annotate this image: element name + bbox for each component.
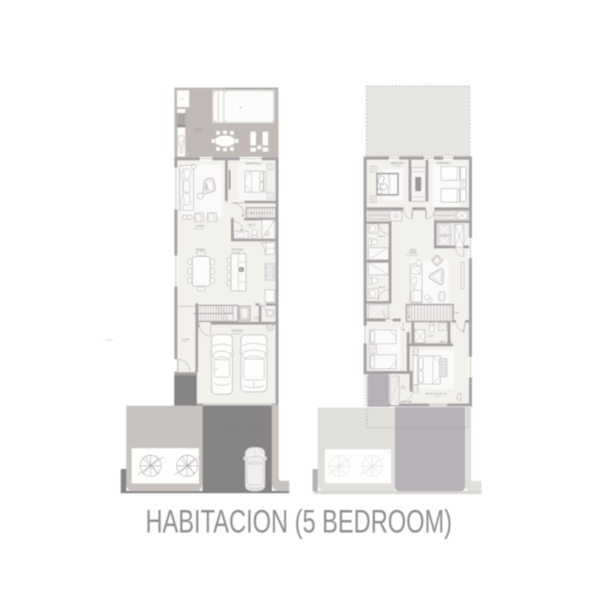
svg-text:WC 1: WC 1 xyxy=(429,336,435,338)
svg-text:KITCHEN: KITCHEN xyxy=(232,247,244,251)
svg-text:DINING: DINING xyxy=(196,247,205,251)
svg-text:P.E.: P.E. xyxy=(180,99,184,101)
svg-text:9' x 5': 9' x 5' xyxy=(249,227,254,229)
svg-text:16'4 x 13'1: 16'4 x 13'1 xyxy=(194,229,203,231)
svg-text:GARAGE: GARAGE xyxy=(231,329,243,333)
svg-text:LANAI: LANAI xyxy=(195,127,203,131)
svg-text:BATH 3: BATH 3 xyxy=(379,286,387,289)
svg-text:11'2 x 12': 11'2 x 12' xyxy=(394,166,402,168)
svg-text:FOYER: FOYER xyxy=(182,339,190,341)
svg-text:HABITACION (5 BEDROOM): HABITACION (5 BEDROOM) xyxy=(146,504,453,540)
svg-text:BATH 4: BATH 4 xyxy=(379,235,387,238)
svg-text:5'3 x 5'9: 5'3 x 5'9 xyxy=(254,319,260,321)
svg-text:21'10 x 21'9: 21'10 x 21'9 xyxy=(231,333,241,335)
svg-text:WIC: WIC xyxy=(401,386,405,388)
svg-text:— 1.05 —: — 1.05 — xyxy=(104,339,115,342)
svg-text:29' x 13': 29' x 13' xyxy=(195,132,203,134)
svg-text:7'1 x 13'8 x 9'10: 7'1 x 13'8 x 9'10 xyxy=(406,255,418,257)
svg-text:LIVING: LIVING xyxy=(196,224,205,228)
svg-text:17' x 15': 17' x 15' xyxy=(435,396,442,398)
svg-text:6'6 x 10': 6'6 x 10' xyxy=(401,388,408,390)
svg-text:7'8 x 9': 7'8 x 9' xyxy=(182,341,188,343)
svg-text:TOILET: TOILET xyxy=(254,317,262,319)
svg-text:DOWN: DOWN xyxy=(453,312,460,314)
